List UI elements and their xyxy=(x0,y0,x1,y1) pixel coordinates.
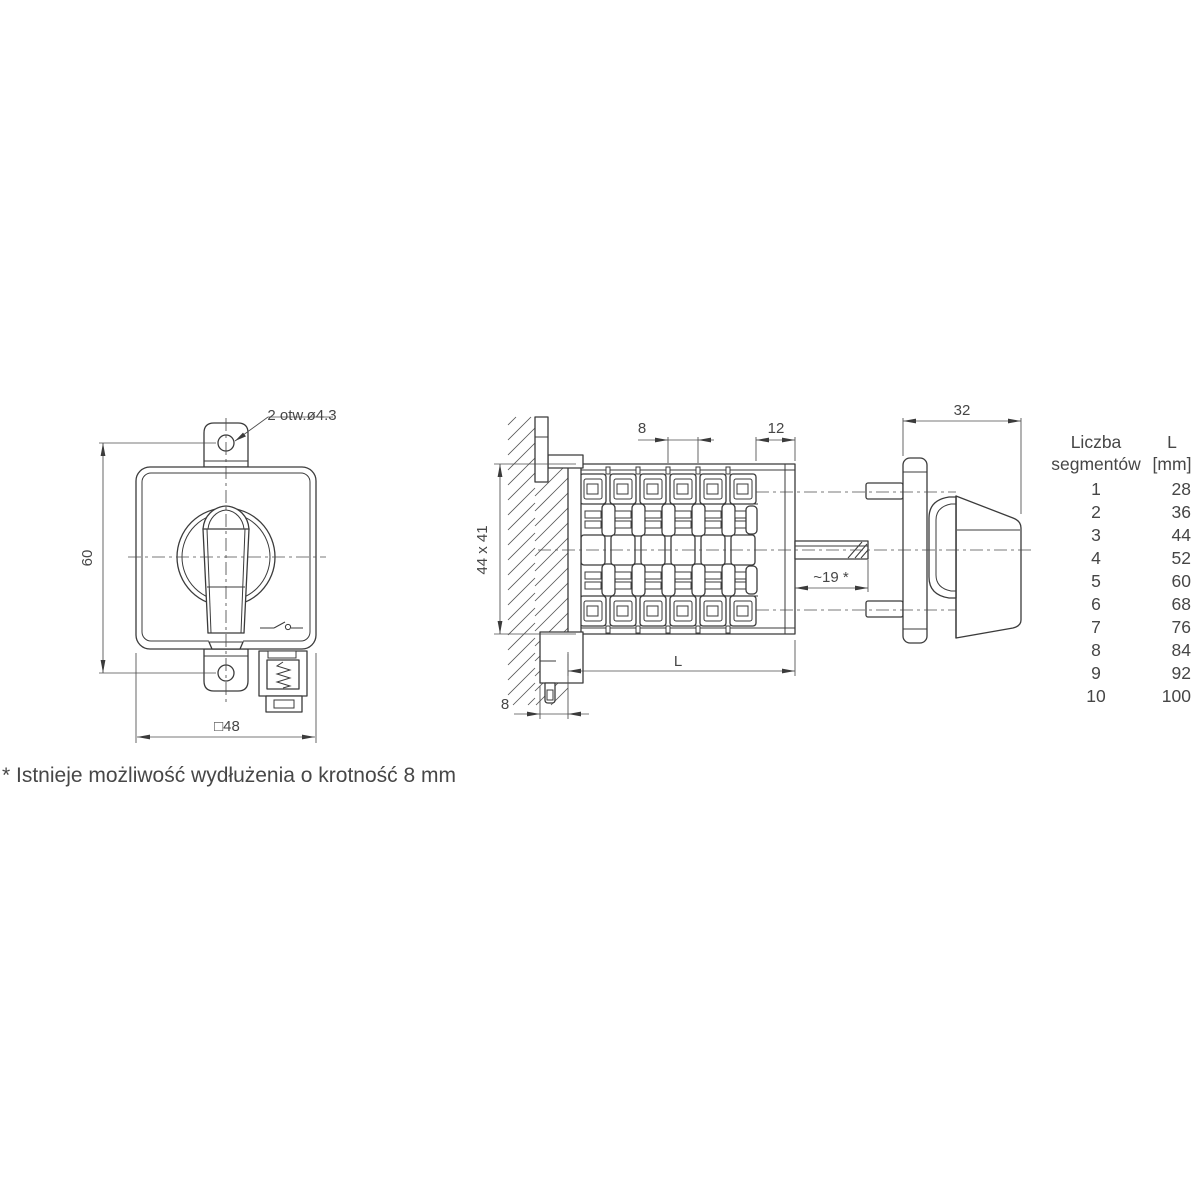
cell-length-mm: 28 xyxy=(1152,478,1192,501)
knob-side xyxy=(929,496,1021,638)
dim-label-depth: 32 xyxy=(954,402,971,419)
fixing-stud-bottom xyxy=(866,601,903,617)
mounting-bracket xyxy=(535,417,583,703)
header-length-line2: [mm] xyxy=(1152,453,1192,475)
cell-segment-count: 2 xyxy=(1040,501,1152,524)
cell-segment-count: 5 xyxy=(1040,570,1152,593)
cell-segment-count: 7 xyxy=(1040,616,1152,639)
table-header: Liczba segmentów L [mm] xyxy=(1040,431,1192,475)
dim-label-shaft: ~19 * xyxy=(813,569,849,586)
switch-body xyxy=(578,464,795,634)
segments-table: Liczba segmentów L [mm] 1282363444525606… xyxy=(1040,431,1192,708)
table-row: 776 xyxy=(1040,616,1192,639)
cell-length-mm: 100 xyxy=(1152,685,1192,708)
table-body: 12823634445256066877688499210100 xyxy=(1040,478,1192,708)
cell-segment-count: 10 xyxy=(1040,685,1152,708)
cell-length-mm: 76 xyxy=(1152,616,1192,639)
cell-segment-count: 1 xyxy=(1040,478,1152,501)
cell-segment-count: 3 xyxy=(1040,524,1152,547)
dim-label-pitch: 8 xyxy=(638,420,646,437)
dim-label-length: L xyxy=(674,653,682,670)
handle-side-view xyxy=(866,418,1021,643)
cell-length-mm: 92 xyxy=(1152,662,1192,685)
cell-length-mm: 84 xyxy=(1152,639,1192,662)
dim-label-mounting-square: 44 x 41 xyxy=(474,525,491,574)
cell-segment-count: 4 xyxy=(1040,547,1152,570)
footnote: * Istnieje możliwość wydłużenia o krotno… xyxy=(2,764,456,788)
cell-length-mm: 36 xyxy=(1152,501,1192,524)
dim-label-height: 60 xyxy=(79,550,96,567)
front-view xyxy=(99,417,333,743)
dim-label-width: □48 xyxy=(214,718,240,735)
table-row: 128 xyxy=(1040,478,1192,501)
technical-drawing: 2 otw.ø4.3 60 □48 8 12 44 x 41 L 8 ~19 *… xyxy=(0,0,1200,1200)
table-row: 236 xyxy=(1040,501,1192,524)
cell-segment-count: 8 xyxy=(1040,639,1152,662)
cell-segment-count: 9 xyxy=(1040,662,1152,685)
side-view xyxy=(494,417,868,719)
table-row: 992 xyxy=(1040,662,1192,685)
table-row: 560 xyxy=(1040,570,1192,593)
cell-length-mm: 68 xyxy=(1152,593,1192,616)
cell-length-mm: 60 xyxy=(1152,570,1192,593)
header-length-line1: L xyxy=(1152,431,1192,453)
drawing-canvas: 2 otw.ø4.3 60 □48 8 12 44 x 41 L 8 ~19 *… xyxy=(0,0,1200,1200)
dim-segment-pitch xyxy=(638,437,714,463)
fixing-stud-top xyxy=(866,483,903,499)
cell-segment-count: 6 xyxy=(1040,593,1152,616)
faceplate xyxy=(903,458,927,643)
dim-label-holes: 2 otw.ø4.3 xyxy=(267,407,336,424)
dim-label-bottom-offset: 8 xyxy=(501,696,509,713)
table-row: 668 xyxy=(1040,593,1192,616)
table-row: 452 xyxy=(1040,547,1192,570)
cell-length-mm: 44 xyxy=(1152,524,1192,547)
table-row: 884 xyxy=(1040,639,1192,662)
cell-length-mm: 52 xyxy=(1152,547,1192,570)
header-segments-line2: segmentów xyxy=(1040,453,1152,475)
table-row: 10100 xyxy=(1040,685,1192,708)
table-row: 344 xyxy=(1040,524,1192,547)
dim-end-section xyxy=(756,437,795,461)
dim-label-end-section: 12 xyxy=(768,420,785,437)
header-segments-line1: Liczba xyxy=(1040,431,1152,453)
din-rail-clip xyxy=(259,651,307,712)
